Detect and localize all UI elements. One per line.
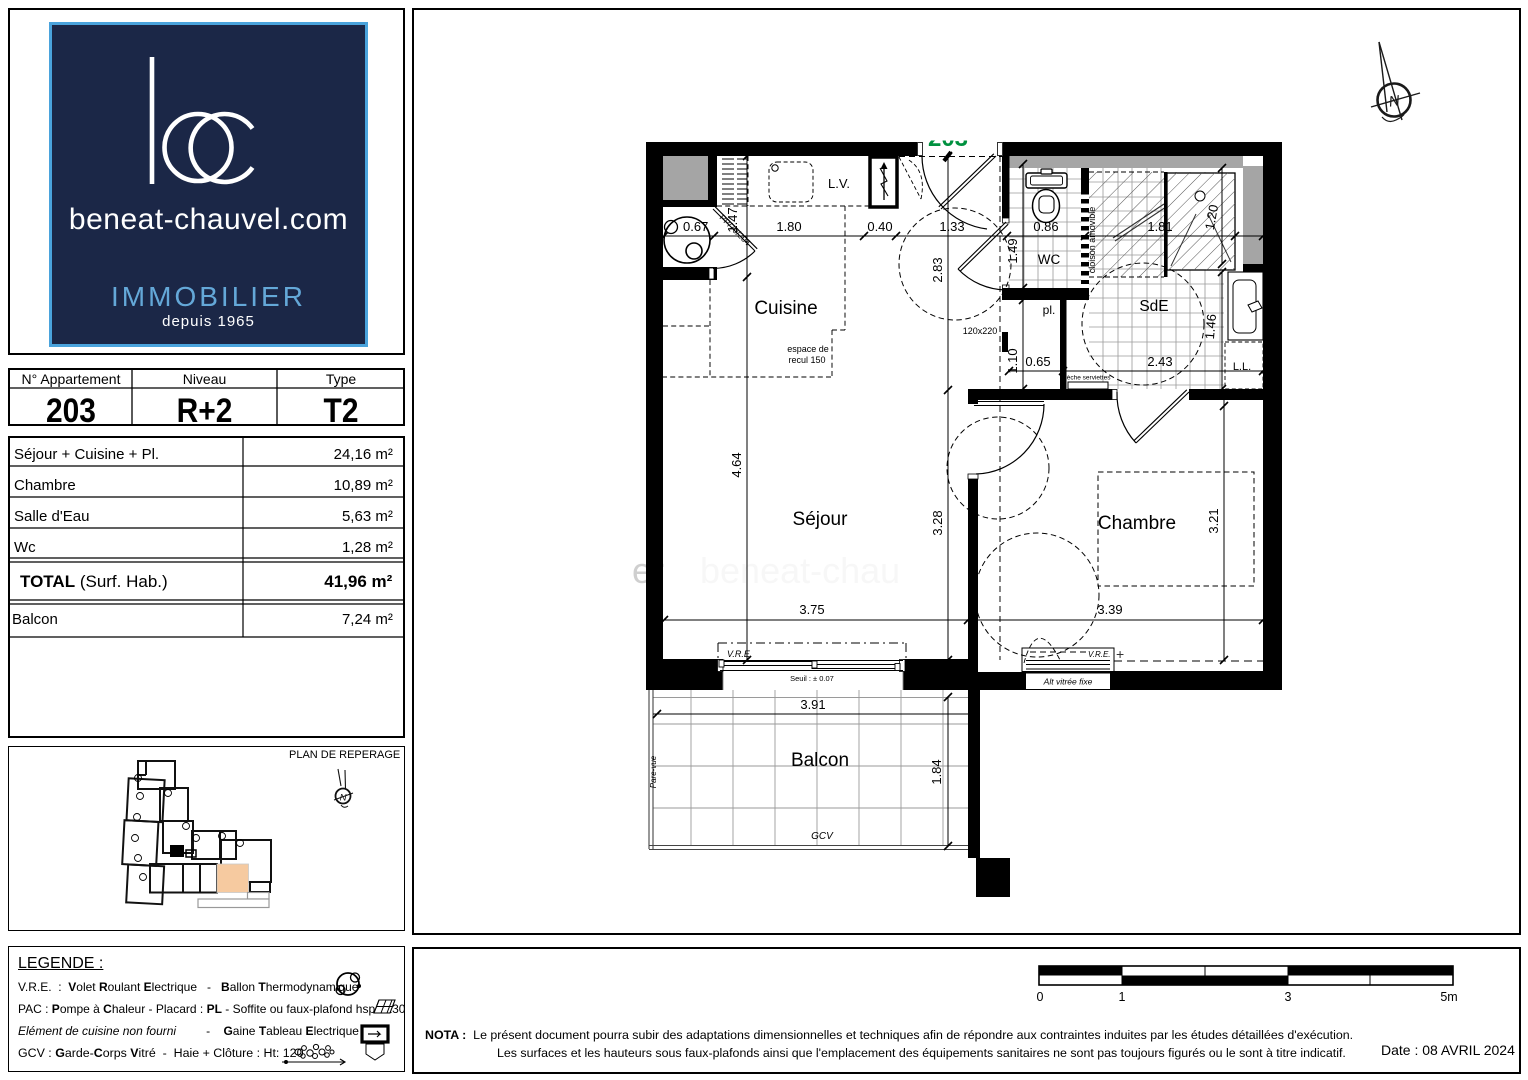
svg-text:WC: WC bbox=[1038, 252, 1061, 267]
svg-text:3.39: 3.39 bbox=[1097, 602, 1122, 617]
svg-text:120x220: 120x220 bbox=[963, 326, 998, 336]
svg-text:1.47: 1.47 bbox=[725, 207, 740, 232]
svg-text:3.91: 3.91 bbox=[800, 697, 825, 712]
svg-text:4.64: 4.64 bbox=[729, 452, 744, 477]
svg-text:2.83: 2.83 bbox=[930, 257, 945, 282]
svg-text:203: 203 bbox=[928, 125, 968, 152]
svg-text:3: 3 bbox=[1285, 990, 1292, 1004]
svg-text:cloison amovible: cloison amovible bbox=[1087, 207, 1097, 274]
svg-text:N: N bbox=[1388, 92, 1401, 110]
svg-text:0.67: 0.67 bbox=[683, 219, 708, 234]
svg-text:Séjour: Séjour bbox=[793, 509, 849, 530]
svg-text:V.R.E.: V.R.E. bbox=[1088, 650, 1111, 659]
svg-text:Alt vitrée fixe: Alt vitrée fixe bbox=[1043, 677, 1093, 687]
svg-text:0.86: 0.86 bbox=[1033, 219, 1058, 234]
svg-text:0: 0 bbox=[1037, 990, 1044, 1004]
svg-text:3.21: 3.21 bbox=[1206, 508, 1221, 533]
svg-text:sèche serviettes: sèche serviettes bbox=[1064, 375, 1112, 382]
svg-text:1.10: 1.10 bbox=[1005, 348, 1020, 373]
svg-text:espace de: espace de bbox=[787, 344, 829, 354]
svg-text:Chambre: Chambre bbox=[1098, 513, 1176, 534]
svg-text:1: 1 bbox=[1119, 990, 1126, 1004]
svg-text:1.80: 1.80 bbox=[776, 219, 801, 234]
svg-text:1.84: 1.84 bbox=[929, 759, 944, 784]
svg-text:L.V.: L.V. bbox=[828, 176, 850, 191]
svg-text:1.33: 1.33 bbox=[939, 219, 964, 234]
svg-text:1.49: 1.49 bbox=[1005, 238, 1020, 263]
svg-text:beneat-chau: beneat-chau bbox=[700, 550, 900, 591]
svg-text:0.40: 0.40 bbox=[867, 219, 892, 234]
svg-text:1.46: 1.46 bbox=[1202, 313, 1219, 340]
svg-text:Cuisine: Cuisine bbox=[754, 298, 817, 319]
svg-text:5m: 5m bbox=[1440, 990, 1457, 1004]
svg-text:0.65: 0.65 bbox=[1025, 354, 1050, 369]
svg-text:2.43: 2.43 bbox=[1147, 354, 1172, 369]
svg-text:L.L.: L.L. bbox=[1233, 361, 1251, 373]
svg-text:SdE: SdE bbox=[1139, 298, 1168, 315]
svg-text:GCV: GCV bbox=[811, 831, 834, 842]
svg-text:Balcon: Balcon bbox=[791, 750, 849, 771]
svg-text:3.28: 3.28 bbox=[930, 510, 945, 535]
svg-text:recul 150: recul 150 bbox=[788, 355, 825, 365]
svg-text:N: N bbox=[340, 793, 347, 804]
svg-text:1.81: 1.81 bbox=[1147, 219, 1172, 234]
svg-text:3.75: 3.75 bbox=[799, 602, 824, 617]
svg-text:Pare-vue: Pare-vue bbox=[649, 755, 658, 788]
svg-text:Seuil : ± 0.07: Seuil : ± 0.07 bbox=[790, 674, 834, 683]
svg-text:+: + bbox=[1116, 646, 1124, 662]
svg-text:pl.: pl. bbox=[1043, 303, 1056, 317]
